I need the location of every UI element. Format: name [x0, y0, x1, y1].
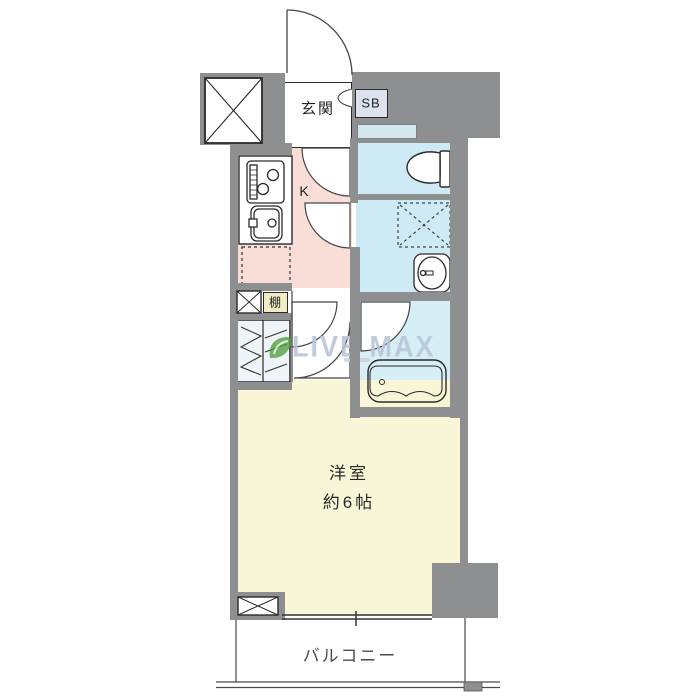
label-room-size: 約6帖: [323, 488, 375, 517]
symbols-layer: [0, 0, 700, 700]
toilet-nook: [357, 124, 417, 139]
pillar-box-icon: [238, 597, 278, 615]
window-icon: [282, 611, 432, 626]
label-entrance: 玄関: [301, 98, 335, 119]
shaft-box-icon: [205, 78, 262, 143]
label-balcony: バルコニー: [303, 642, 398, 667]
label-shelf: 棚: [269, 294, 281, 311]
label-kitchen: K: [299, 183, 308, 199]
label-shoe-box: SB: [361, 96, 380, 111]
label-room-name: 洋室: [323, 459, 375, 488]
floorplan-canvas: LIVE MAX: [0, 0, 700, 700]
label-living-room: 洋室 約6帖: [323, 459, 375, 517]
front-door-icon: [287, 10, 352, 75]
balcony-divider-block: [464, 682, 482, 691]
pipe-space-icon: [237, 291, 261, 313]
